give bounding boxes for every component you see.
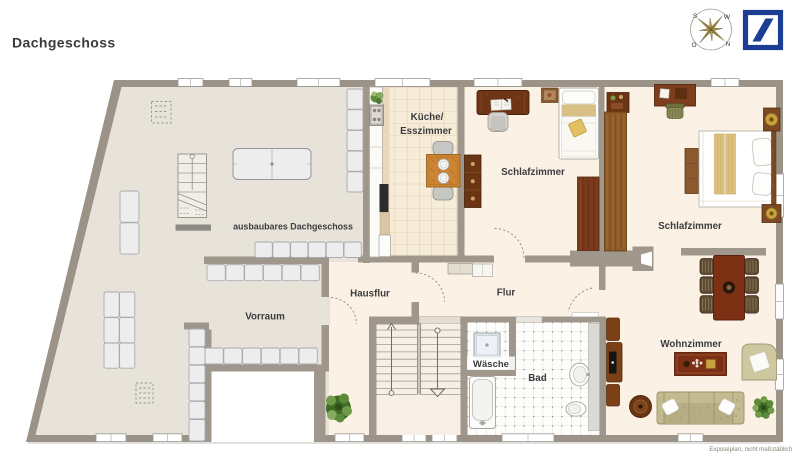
svg-text:Vorraum: Vorraum bbox=[245, 312, 285, 323]
svg-text:ausbaubares Dachgeschoss: ausbaubares Dachgeschoss bbox=[233, 222, 353, 232]
svg-text:Bad: Bad bbox=[528, 373, 547, 384]
svg-text:Schlafzimmer: Schlafzimmer bbox=[658, 221, 722, 232]
svg-text:Dachgeschoss: Dachgeschoss bbox=[12, 35, 116, 51]
svg-text:Hausflur: Hausflur bbox=[350, 289, 390, 300]
svg-text:Wäsche: Wäsche bbox=[473, 359, 509, 370]
svg-text:W: W bbox=[724, 14, 731, 21]
svg-text:Küche/: Küche/ bbox=[411, 112, 444, 123]
svg-text:Flur: Flur bbox=[497, 288, 516, 299]
svg-text:O: O bbox=[691, 42, 696, 49]
svg-text:Exposéplan, nicht maßstäblich: Exposéplan, nicht maßstäblich bbox=[709, 446, 792, 453]
svg-text:Wohnzimmer: Wohnzimmer bbox=[660, 339, 722, 350]
svg-text:N: N bbox=[726, 41, 731, 48]
svg-text:S: S bbox=[693, 13, 698, 20]
svg-text:Esszimmer: Esszimmer bbox=[400, 126, 452, 137]
svg-text:Schlafzimmer: Schlafzimmer bbox=[501, 167, 565, 178]
